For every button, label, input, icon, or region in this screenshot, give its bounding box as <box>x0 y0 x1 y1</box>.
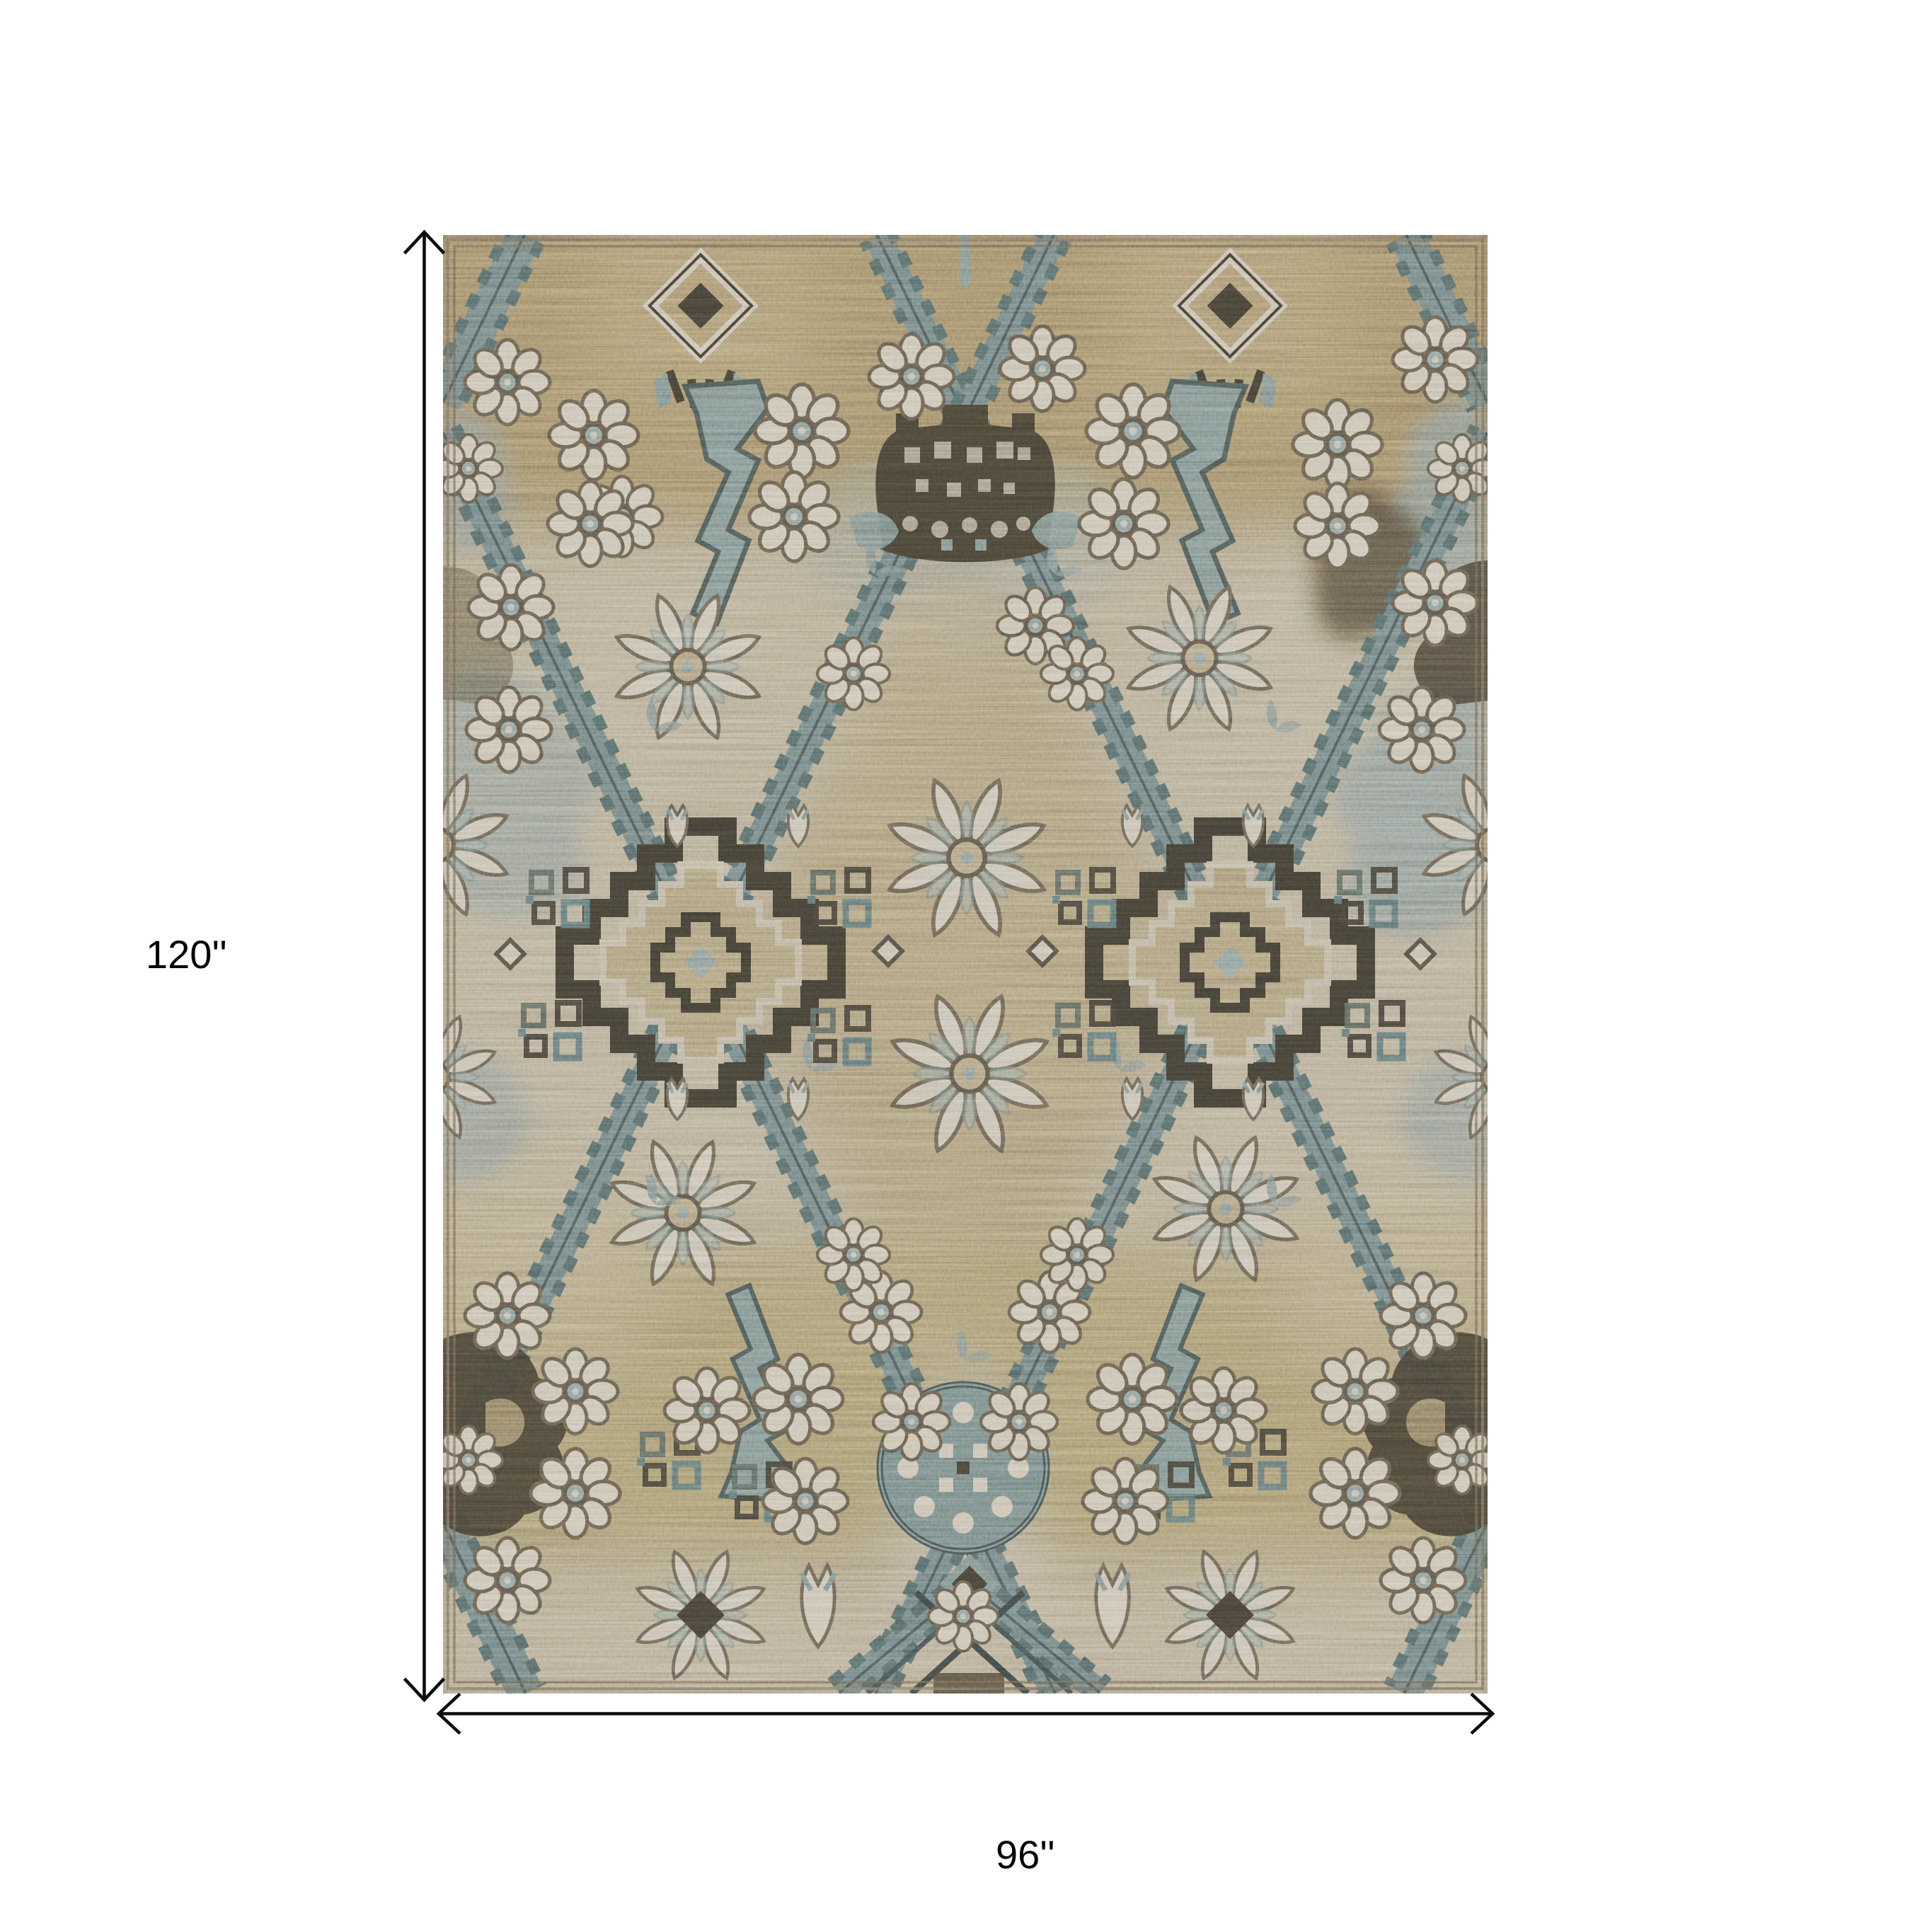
svg-text:96'': 96'' <box>996 1832 1055 1877</box>
svg-text:120'': 120'' <box>146 932 227 977</box>
